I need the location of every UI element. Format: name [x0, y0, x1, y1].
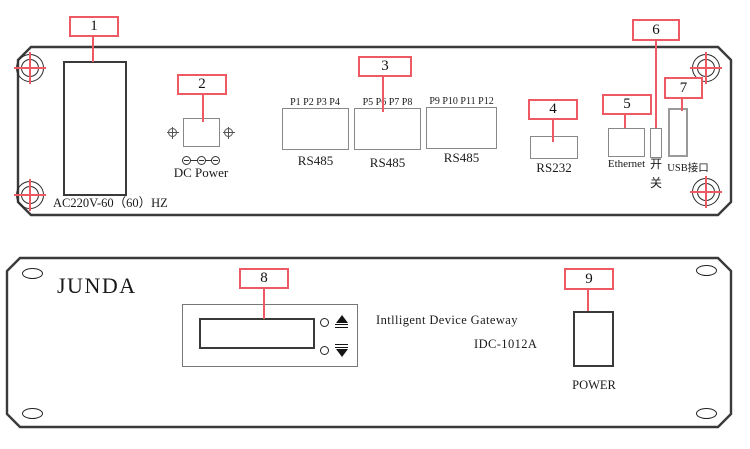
- leader-line-7: [681, 99, 683, 111]
- leader-line-5: [624, 115, 626, 128]
- ethernet-port: [608, 128, 645, 157]
- rs232-label: RS232: [530, 161, 578, 175]
- rs485-label: RS485: [426, 151, 497, 165]
- rs485-port-block: [354, 108, 421, 150]
- device-name-label: Intlligent Device Gateway: [376, 314, 518, 328]
- callout-5: 5: [602, 94, 652, 115]
- callout-7: 7: [664, 77, 703, 99]
- callout-2: 2: [177, 74, 227, 95]
- callout-1: 1: [69, 16, 119, 37]
- ac-inlet-label: AC220V-60（60）HZ: [53, 197, 168, 211]
- leader-line-8: [263, 289, 265, 319]
- power-switch: [650, 128, 662, 158]
- rs485-label: RS485: [282, 154, 349, 168]
- usb-port: [668, 108, 688, 157]
- callout-3: 3: [358, 56, 412, 77]
- dc-terminal-icon: [211, 156, 220, 165]
- rs485-port-block: [282, 108, 349, 150]
- switch-label-bottom: 关: [648, 177, 664, 190]
- mounting-slot-icon: [22, 268, 43, 279]
- rs485-ports-label: P1 P2 P3 P4: [281, 97, 349, 108]
- ac-inlet-port: [63, 61, 127, 196]
- down-led-icon: [320, 346, 329, 355]
- power-button-label: POWER: [568, 379, 620, 393]
- dc-power-label: DC Power: [170, 166, 232, 180]
- screw-icon: [16, 54, 44, 82]
- leader-line-4: [552, 119, 554, 142]
- model-label: IDC-1012A: [474, 338, 537, 352]
- leader-line-6: [655, 41, 657, 128]
- rs485-ports-label: P9 P10 P11 P12: [424, 96, 499, 107]
- brand-logo: JUNDA: [57, 274, 137, 298]
- dc-screw-left-icon: [168, 128, 177, 137]
- callout-8: 8: [239, 268, 289, 289]
- power-button: [573, 311, 614, 367]
- leader-line-1: [92, 37, 94, 62]
- leader-line-9: [587, 290, 589, 311]
- mounting-slot-icon: [696, 408, 717, 419]
- callout-9: 9: [564, 268, 614, 290]
- down-arrow-icon: [335, 343, 348, 357]
- rs232-port: [530, 136, 578, 159]
- usb-label: USB接口: [664, 163, 712, 175]
- dc-terminal-icon: [182, 156, 191, 165]
- callout-4: 4: [528, 99, 578, 120]
- switch-label-top: 开: [648, 158, 664, 171]
- up-arrow-icon: [335, 315, 348, 329]
- up-led-icon: [320, 318, 329, 327]
- rs485-ports-label: P5 P6 P7 P8: [353, 97, 422, 108]
- device-panel-diagram: AC220V-60（60）HZ DC Power P1 P2 P3 P4 RS4…: [0, 0, 750, 449]
- callout-6: 6: [632, 19, 680, 41]
- dc-power-port: [183, 118, 220, 147]
- leader-line-3: [382, 77, 384, 112]
- screw-icon: [692, 178, 720, 206]
- mounting-slot-icon: [22, 408, 43, 419]
- rs485-port-block: [426, 107, 497, 149]
- rs485-label: RS485: [354, 156, 421, 170]
- screw-icon: [16, 181, 44, 209]
- leader-line-2: [202, 95, 204, 122]
- dc-screw-right-icon: [224, 128, 233, 137]
- lcd-screen: [199, 318, 315, 349]
- mounting-slot-icon: [696, 265, 717, 276]
- dc-terminal-icon: [197, 156, 206, 165]
